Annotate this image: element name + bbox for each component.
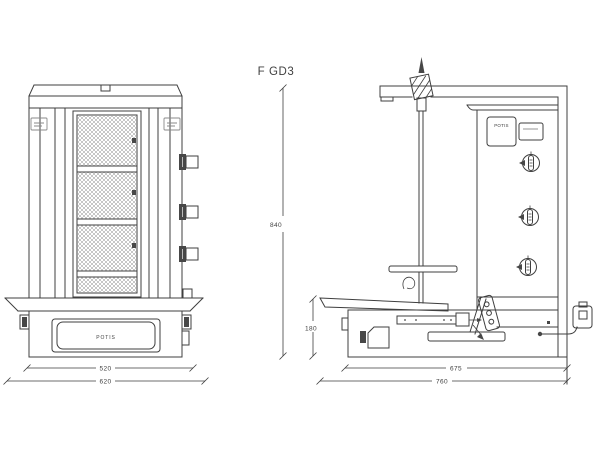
dim-side-overall-depth: 760 (436, 379, 448, 386)
front-knob-2 (179, 204, 198, 220)
dim-front-inner-width: 520 (99, 366, 111, 373)
spit-collar (417, 98, 426, 111)
base-hook (342, 318, 348, 330)
technical-drawing: F GD3 (0, 0, 600, 450)
slide-rail (397, 313, 482, 326)
info-plate (519, 123, 543, 140)
meat-support-bar (389, 266, 457, 272)
spit-tip (419, 57, 425, 73)
spit-clamp (410, 74, 433, 99)
side-view: 840 POTIS (270, 57, 592, 386)
gas-knob-1 (519, 152, 540, 172)
front-knob-1 (179, 154, 198, 170)
base-dot (547, 321, 550, 324)
front-burner-mesh-panel (73, 111, 141, 297)
dim-side-base-height: 180 (305, 326, 317, 333)
drawer-brand-label: POTIS (96, 335, 116, 341)
mesh-latch-dot (132, 243, 136, 248)
handle-bar (428, 332, 505, 341)
front-view: POTIS 520 620 (4, 85, 209, 386)
skewer-spit (389, 57, 457, 303)
base-switch (360, 331, 366, 343)
mesh-section-3 (78, 225, 136, 271)
drawing-sheet: F GD3 (0, 0, 600, 450)
side-back-panel (558, 86, 567, 384)
power-plug (573, 302, 592, 328)
mesh-section-4 (78, 277, 136, 292)
front-hood (29, 85, 182, 108)
dim-side-body-depth: 675 (450, 366, 462, 373)
gas-knob-2 (518, 206, 539, 226)
side-height-dimension: 840 (270, 85, 287, 360)
tray-tab-right (182, 331, 189, 345)
dim-side-height: 840 (270, 222, 282, 229)
side-plate-brand-label: POTIS (494, 123, 509, 128)
mesh-latch-dot (132, 138, 136, 143)
front-base: POTIS (5, 298, 203, 357)
dim-front-overall-width: 620 (99, 379, 111, 386)
mesh-section-2 (78, 172, 136, 219)
mesh-section-1 (78, 116, 136, 166)
potis-plate: POTIS (487, 117, 516, 146)
drawing-title: F GD3 (258, 66, 295, 78)
side-base (320, 295, 567, 357)
motor-bracket (470, 295, 500, 340)
power-cord (538, 302, 592, 336)
front-lower-bracket (183, 289, 192, 298)
front-dimensions: 520 620 (4, 365, 209, 386)
front-knob-3 (179, 246, 198, 262)
gas-knob-3 (516, 256, 537, 276)
side-control-panel: POTIS (467, 105, 558, 310)
side-tray (320, 298, 448, 311)
skewer-hook (403, 277, 415, 289)
side-top-arm (380, 86, 567, 101)
base-box (368, 327, 389, 348)
mesh-latch-dot (132, 190, 136, 195)
